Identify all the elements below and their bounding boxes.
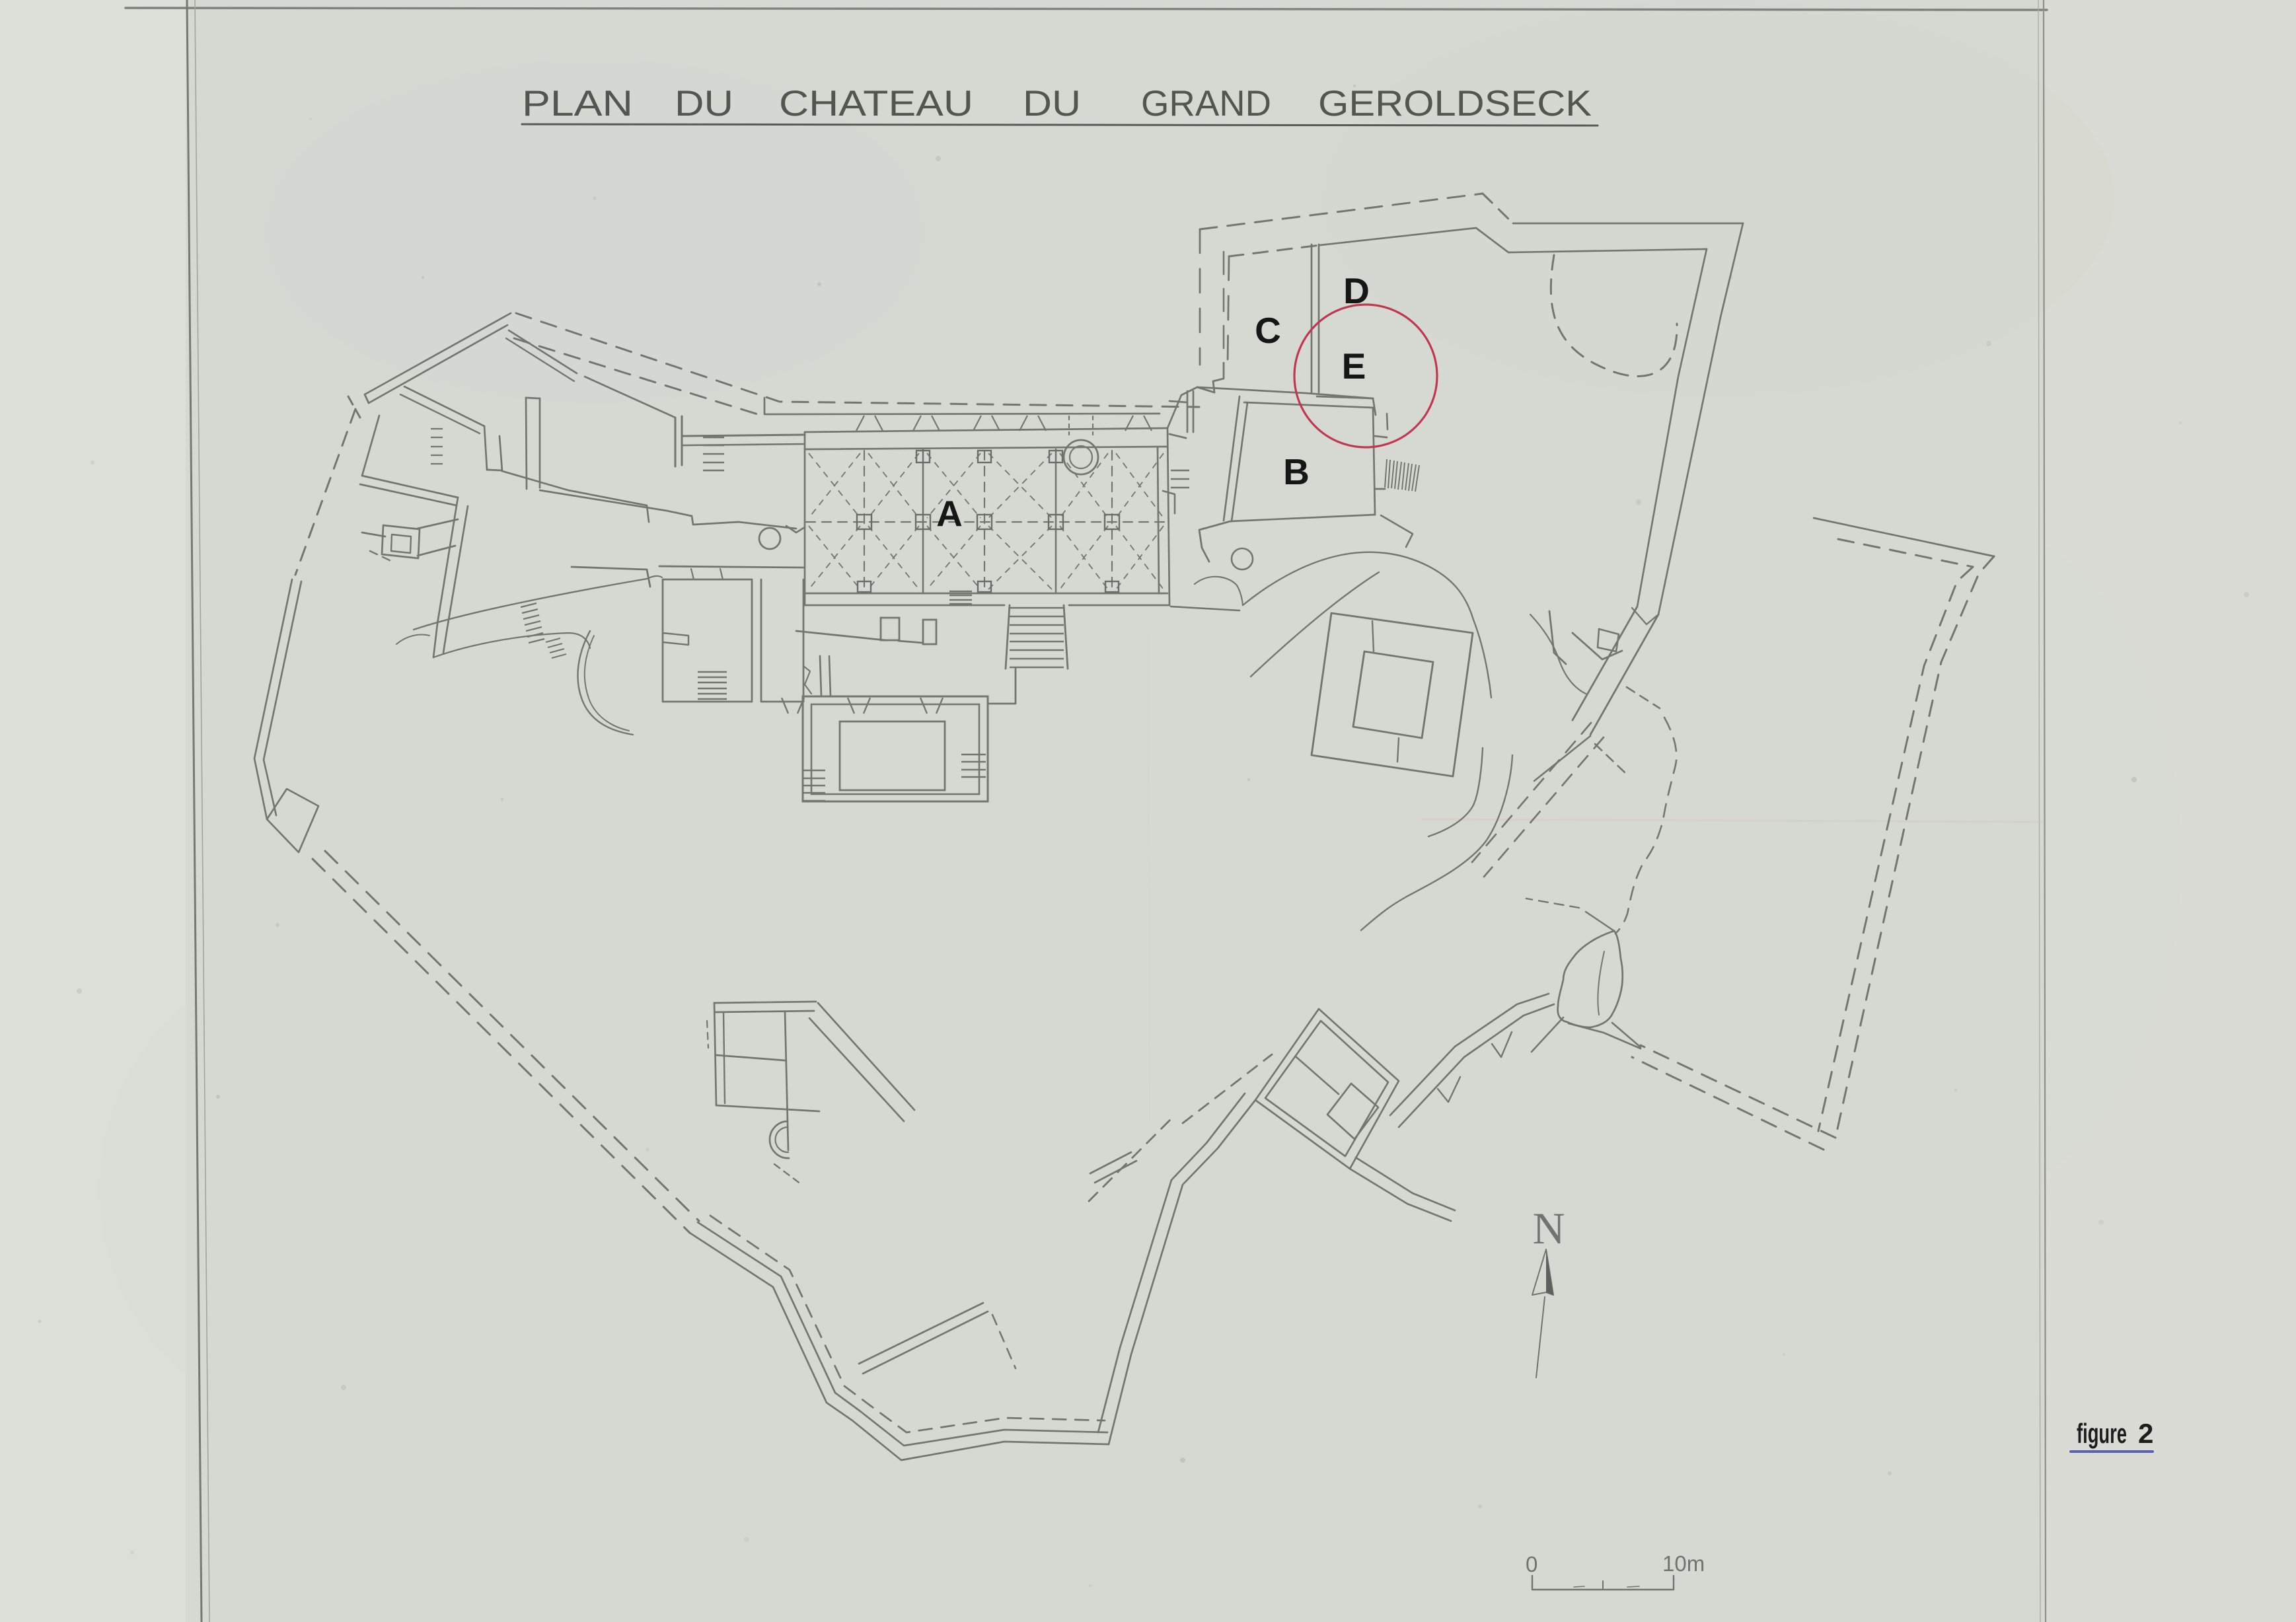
svg-text:DU: DU bbox=[675, 83, 733, 124]
svg-text:E: E bbox=[1342, 346, 1366, 387]
svg-text:0: 0 bbox=[1526, 1552, 1537, 1576]
svg-text:PLAN: PLAN bbox=[522, 83, 633, 124]
svg-text:GEROLDSECK: GEROLDSECK bbox=[1318, 83, 1592, 124]
svg-text:10m: 10m bbox=[1662, 1551, 1705, 1576]
svg-text:N: N bbox=[1532, 1203, 1565, 1253]
svg-text:A: A bbox=[936, 493, 963, 534]
svg-text:DU: DU bbox=[1023, 83, 1081, 124]
svg-text:GRAND: GRAND bbox=[1141, 83, 1271, 124]
svg-text:B: B bbox=[1283, 451, 1310, 492]
svg-text:C: C bbox=[1255, 310, 1281, 351]
svg-text:2: 2 bbox=[2138, 1418, 2153, 1449]
svg-text:CHATEAU: CHATEAU bbox=[779, 83, 973, 124]
svg-text:figure: figure bbox=[2077, 1418, 2127, 1449]
